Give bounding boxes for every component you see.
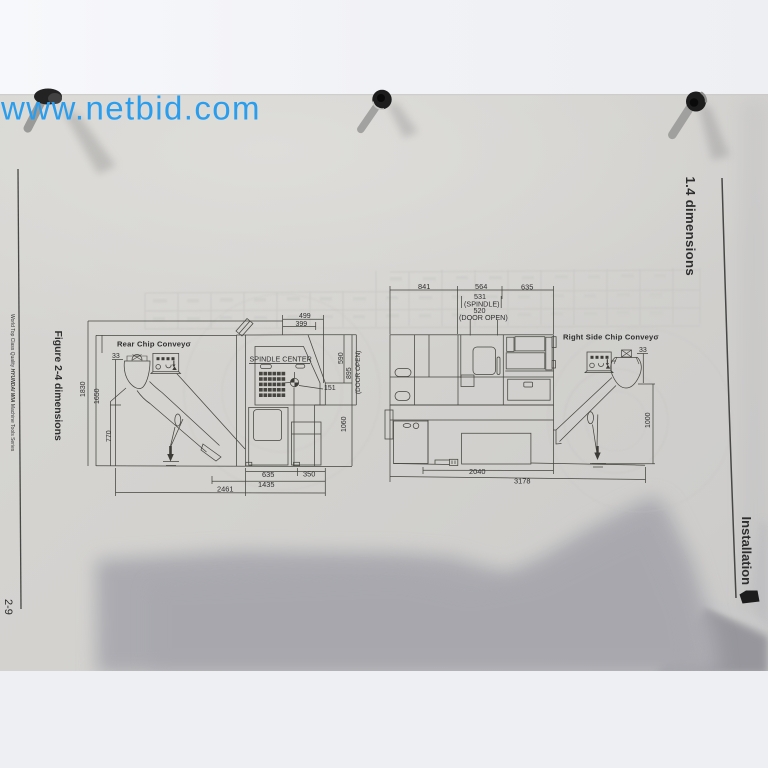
svg-text:635: 635 <box>262 470 274 479</box>
svg-text:1435: 1435 <box>258 480 274 489</box>
svg-text:World Top Class Quality HYUNDA: World Top Class Quality HYUNDAI WIA Mach… <box>9 314 15 452</box>
svg-text:399: 399 <box>296 321 308 328</box>
svg-text:www.netbid.com: www.netbid.com <box>0 90 261 127</box>
svg-text:SPINDLE CENTER: SPINDLE CENTER <box>250 354 312 363</box>
svg-text:3178: 3178 <box>514 477 530 486</box>
svg-text:33: 33 <box>639 347 647 354</box>
svg-text:Right Side Chip Conveyσ: Right Side Chip Conveyσ <box>563 333 659 342</box>
svg-text:Figure 2-4 dimensions: Figure 2-4 dimensions <box>52 331 63 442</box>
svg-text:2-9: 2-9 <box>2 599 14 615</box>
svg-text:1830: 1830 <box>80 381 87 397</box>
svg-text:Rear Chip Conveyσ: Rear Chip Conveyσ <box>117 340 192 349</box>
svg-text:350: 350 <box>303 470 315 479</box>
svg-text:895: 895 <box>346 367 353 379</box>
svg-text:(DOOR OPEN): (DOOR OPEN) <box>355 351 362 394</box>
svg-text:1.4 dimensions: 1.4 dimensions <box>683 177 698 276</box>
svg-text:151: 151 <box>324 385 336 392</box>
svg-text:499: 499 <box>299 313 311 320</box>
svg-text:770: 770 <box>106 430 113 442</box>
svg-text:2040: 2040 <box>469 467 485 476</box>
svg-text:1000: 1000 <box>645 412 652 428</box>
svg-text:33: 33 <box>112 353 120 360</box>
svg-text:564: 564 <box>475 282 487 291</box>
svg-text:1060: 1060 <box>341 416 348 432</box>
svg-text:2461: 2461 <box>217 485 233 494</box>
svg-text:841: 841 <box>418 282 430 291</box>
svg-text:(DOOR OPEN): (DOOR OPEN) <box>459 313 508 322</box>
svg-text:Installation: Installation <box>739 517 754 586</box>
svg-text:635: 635 <box>521 283 533 292</box>
svg-text:590: 590 <box>338 352 345 364</box>
svg-text:1650: 1650 <box>94 388 101 404</box>
